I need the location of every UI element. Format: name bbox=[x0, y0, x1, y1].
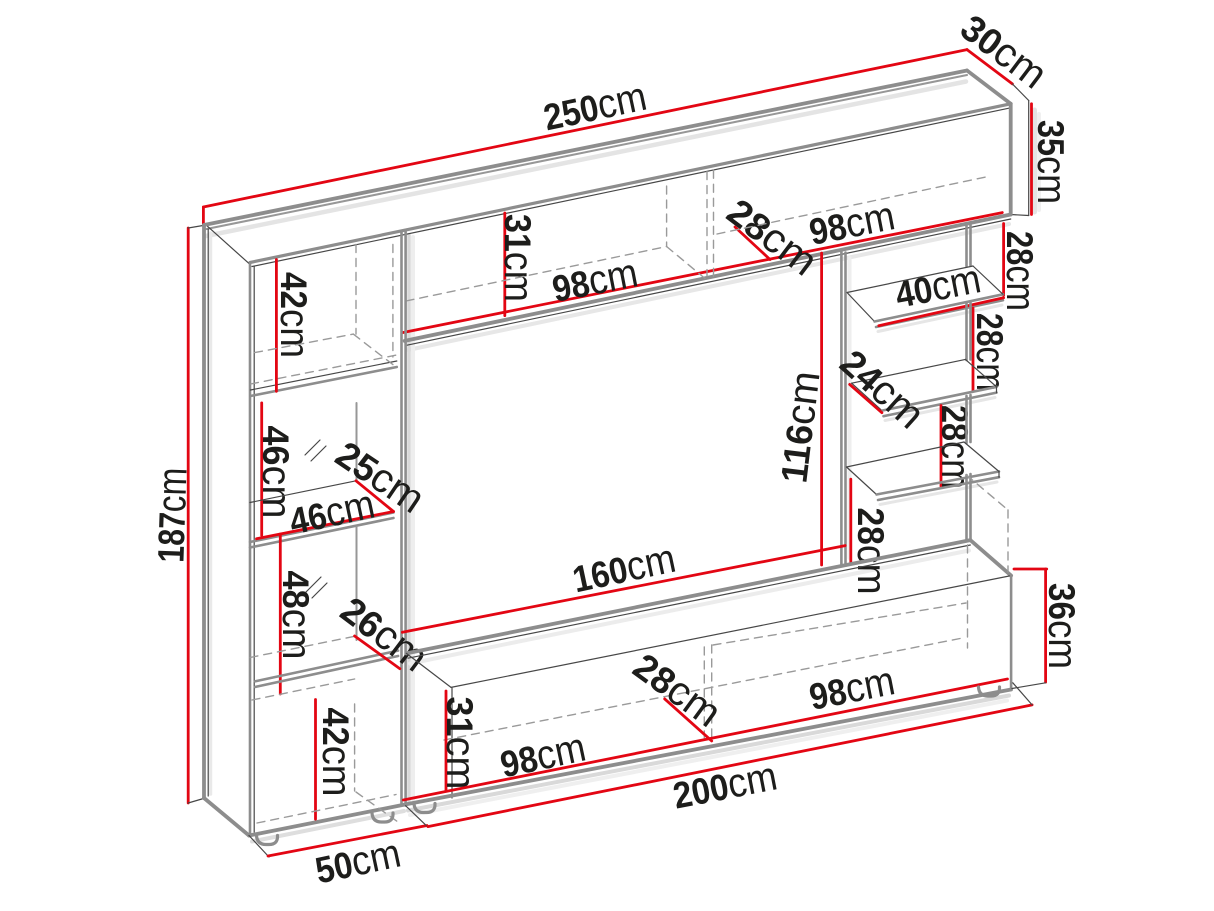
svg-text:28cm: 28cm bbox=[968, 313, 1014, 391]
svg-text:48cm: 48cm bbox=[274, 571, 320, 660]
svg-text:31cm: 31cm bbox=[438, 697, 484, 790]
svg-text:160cm: 160cm bbox=[568, 535, 679, 602]
svg-text:28cm: 28cm bbox=[849, 508, 895, 595]
svg-text:42cm: 42cm bbox=[272, 272, 318, 358]
svg-text:31cm: 31cm bbox=[496, 214, 542, 302]
svg-text:116cm: 116cm bbox=[769, 368, 828, 485]
svg-text:50cm: 50cm bbox=[311, 830, 405, 893]
svg-text:28cm: 28cm bbox=[625, 642, 730, 736]
svg-text:250cm: 250cm bbox=[539, 73, 650, 140]
svg-text:36cm: 36cm bbox=[1040, 583, 1086, 669]
svg-text:24cm: 24cm bbox=[832, 339, 934, 437]
svg-text:35cm: 35cm bbox=[1029, 120, 1075, 204]
svg-text:187cm: 187cm bbox=[146, 467, 195, 564]
svg-text:98cm: 98cm bbox=[548, 249, 641, 311]
svg-text:30cm: 30cm bbox=[952, 4, 1056, 98]
svg-text:28cm: 28cm bbox=[998, 231, 1044, 311]
svg-text:42cm: 42cm bbox=[314, 708, 360, 797]
